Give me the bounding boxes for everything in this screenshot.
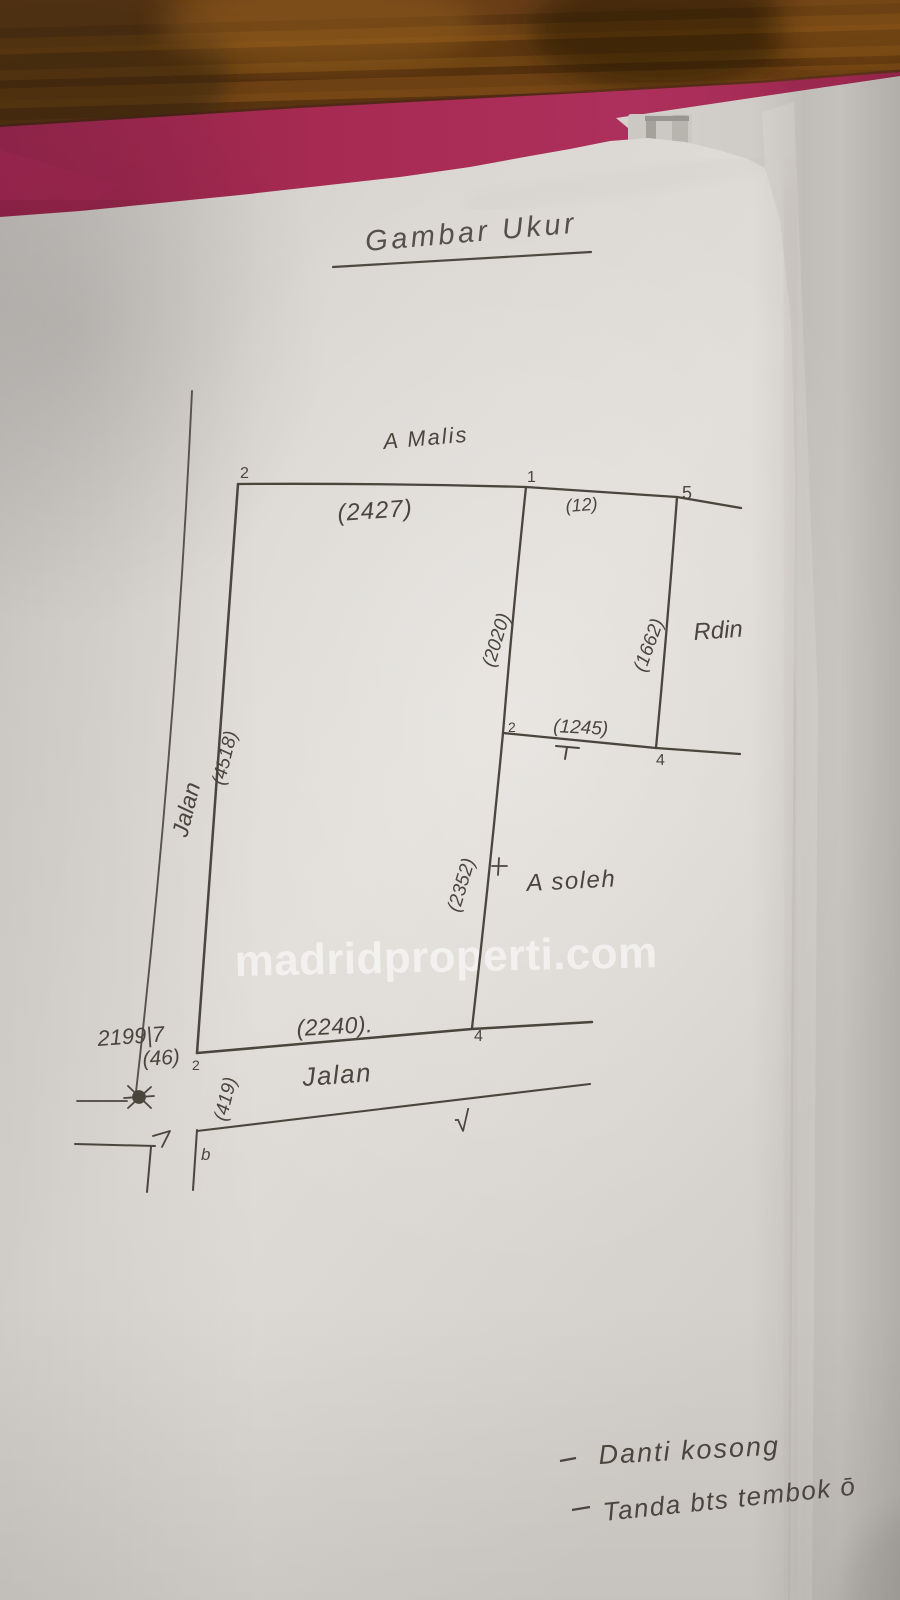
svg-text:1: 1 (527, 469, 536, 486)
svg-text:2: 2 (508, 719, 516, 735)
svg-text:(2240).: (2240). (296, 1011, 374, 1041)
svg-text:b: b (201, 1145, 210, 1164)
svg-text:Rdin: Rdin (693, 616, 744, 646)
svg-text:4: 4 (656, 752, 665, 769)
svg-text:(2427): (2427) (337, 495, 414, 527)
svg-text:√: √ (453, 1106, 471, 1139)
svg-text:4: 4 (474, 1028, 483, 1045)
svg-text:5: 5 (682, 483, 692, 503)
svg-text:(46): (46) (142, 1045, 181, 1071)
svg-text:A soleh: A soleh (524, 865, 617, 897)
svg-text:(1245): (1245) (553, 716, 609, 740)
svg-text:Jalan: Jalan (300, 1057, 373, 1092)
svg-text:(12): (12) (565, 494, 598, 516)
svg-text:2: 2 (240, 465, 249, 482)
svg-text:madridproperti.com: madridproperti.com (234, 928, 658, 986)
svg-text:2: 2 (192, 1057, 200, 1073)
